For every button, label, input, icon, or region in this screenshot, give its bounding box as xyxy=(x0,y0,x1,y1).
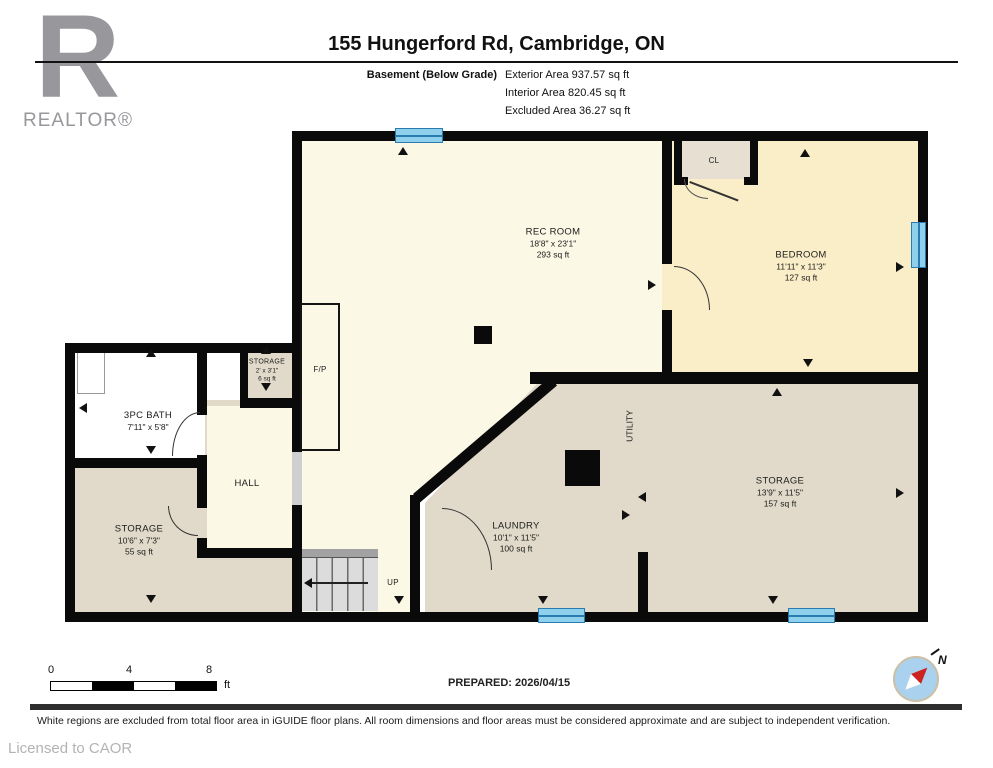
measure-arrow-icon xyxy=(146,446,156,454)
license-text: Licensed to CAOR xyxy=(8,740,132,757)
page-title: 155 Hungerford Rd, Cambridge, ON xyxy=(0,33,993,56)
window-right xyxy=(911,222,926,268)
measure-arrow-icon xyxy=(79,403,87,413)
prepared-date: PREPARED: 2026/04/15 xyxy=(448,677,570,689)
wall-main-horizontal xyxy=(530,372,928,384)
room-label-storage-left: STORAGE 10'6" x 7'3" 55 sq ft xyxy=(115,523,163,556)
measure-arrow-icon xyxy=(261,383,271,391)
stair-direction-line xyxy=(310,582,368,584)
measure-arrow-icon xyxy=(772,388,782,396)
room-label-rec-room: REC ROOM 18'8" x 23'1" 293 sq ft xyxy=(526,226,581,259)
scale-segment xyxy=(175,682,216,690)
wall-bath-hall-upper xyxy=(197,343,207,415)
room-label-hall: HALL xyxy=(235,478,260,490)
room-label-bedroom: BEDROOM 11'11" x 11'3" 127 sq ft xyxy=(775,249,826,282)
stair-direction-arrow-icon xyxy=(304,578,312,588)
wall-closet-bottom-right xyxy=(744,177,758,185)
stair-edge xyxy=(302,549,378,558)
excluded-area: Excluded Area 36.27 sq ft xyxy=(505,105,630,117)
room-label-closet: CL xyxy=(709,156,720,166)
window-bottom-right xyxy=(788,608,835,623)
wall-stair-corridor-right xyxy=(410,495,420,615)
exterior-area: Exterior Area 937.57 sq ft xyxy=(505,69,629,81)
measure-arrow-icon xyxy=(398,147,408,155)
realtor-logo-r-icon: R xyxy=(35,0,120,116)
wall-rec-bedroom-upper xyxy=(662,131,672,264)
wall-rec-left-lower xyxy=(292,505,302,615)
scale-tick-4: 4 xyxy=(126,664,132,676)
fireplace-box xyxy=(300,303,340,451)
support-post xyxy=(474,326,492,344)
bath-fixture-outline xyxy=(77,352,105,394)
wall-small-storage-left xyxy=(240,343,248,405)
room-fill-bath-alcove xyxy=(205,352,242,400)
measure-arrow-icon xyxy=(896,262,904,272)
wall-hall-left-mid xyxy=(197,455,207,508)
measure-arrow-icon xyxy=(896,488,904,498)
realtor-logo: R REALTOR® xyxy=(13,6,123,136)
window-bottom-left xyxy=(538,608,585,623)
scale-segment xyxy=(134,682,175,690)
wall-laundry-storage-divider xyxy=(638,552,648,614)
room-label-utility: UTILITY xyxy=(625,410,636,442)
room-label-storage-right: STORAGE 13'9" x 11'5" 157 sq ft xyxy=(756,475,804,508)
footer-divider xyxy=(30,704,962,710)
measure-arrow-icon xyxy=(538,596,548,604)
measure-arrow-icon xyxy=(768,596,778,604)
measure-arrow-icon xyxy=(622,510,630,520)
room-label-storage-small: STORAGE 2' x 3'1" 6 sq ft xyxy=(249,359,285,384)
measure-arrow-icon xyxy=(261,346,271,354)
measure-arrow-icon xyxy=(146,595,156,603)
wall-bath-bottom xyxy=(65,458,207,468)
furnace-block xyxy=(565,450,600,486)
floor-plan-page: { "header": { "title": "155 Hungerford R… xyxy=(0,0,993,768)
room-label-bath: 3PC BATH 7'11" x 5'8" xyxy=(124,410,172,433)
scale-unit: ft xyxy=(224,679,230,691)
compass-north-label: N xyxy=(938,653,947,667)
room-label-laundry: LAUNDRY 10'1" x 11'5" 100 sq ft xyxy=(492,520,539,553)
wall-hall-bottom xyxy=(197,548,302,558)
room-label-fireplace: F/P xyxy=(313,365,326,375)
wall-left-outer xyxy=(65,343,75,622)
measure-arrow-icon xyxy=(146,349,156,357)
wall-top xyxy=(292,131,928,141)
stairs-up-label: UP xyxy=(387,578,399,588)
doorway-opening-hall-rec xyxy=(292,452,302,505)
interior-area: Interior Area 820.45 sq ft xyxy=(505,87,625,99)
measure-arrow-icon xyxy=(648,280,656,290)
scale-segment xyxy=(51,682,92,690)
wall-rec-bedroom-lower xyxy=(662,310,672,380)
footer-disclaimer: White regions are excluded from total fl… xyxy=(37,715,890,727)
scale-segment xyxy=(92,682,133,690)
header-divider xyxy=(35,61,958,63)
wall-small-storage-bottom xyxy=(240,398,302,408)
realtor-logo-text: REALTOR® xyxy=(23,110,133,132)
scale-tick-8: 8 xyxy=(206,664,212,676)
staircase xyxy=(302,549,378,611)
window-top xyxy=(395,128,443,143)
scale-bar-segments xyxy=(50,681,217,691)
measure-arrow-icon xyxy=(803,359,813,367)
measure-arrow-icon xyxy=(638,492,646,502)
measure-arrow-icon xyxy=(800,149,810,157)
measure-arrow-icon xyxy=(394,596,404,604)
floor-label: Basement (Below Grade) xyxy=(327,69,497,81)
scale-tick-0: 0 xyxy=(48,664,54,676)
